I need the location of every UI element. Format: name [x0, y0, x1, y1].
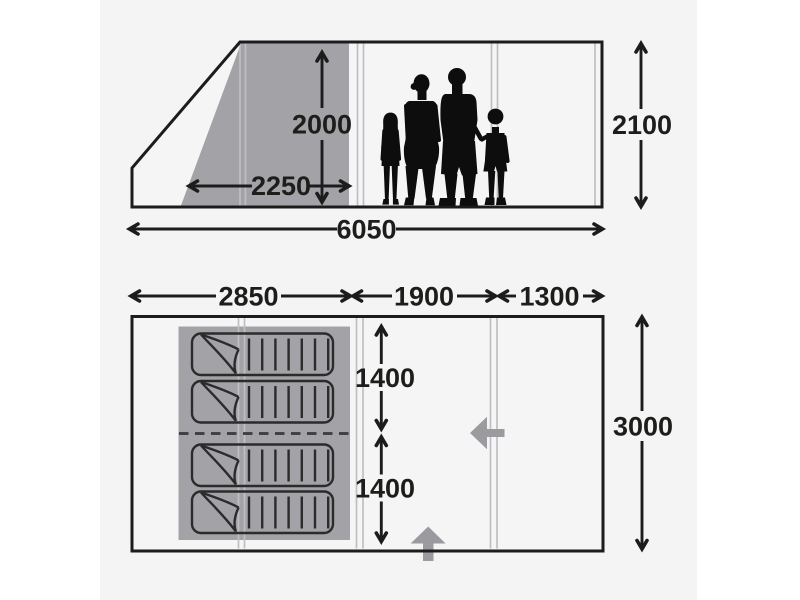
svg-text:6050: 6050: [336, 215, 396, 245]
svg-text:1900: 1900: [394, 282, 454, 312]
svg-text:3000: 3000: [613, 412, 673, 442]
svg-text:1300: 1300: [519, 282, 579, 312]
svg-text:2850: 2850: [218, 282, 278, 312]
svg-text:2250: 2250: [251, 171, 311, 201]
svg-text:1400: 1400: [355, 363, 415, 393]
svg-text:2100: 2100: [612, 110, 672, 140]
svg-text:2000: 2000: [292, 110, 352, 140]
svg-text:1400: 1400: [355, 474, 415, 504]
